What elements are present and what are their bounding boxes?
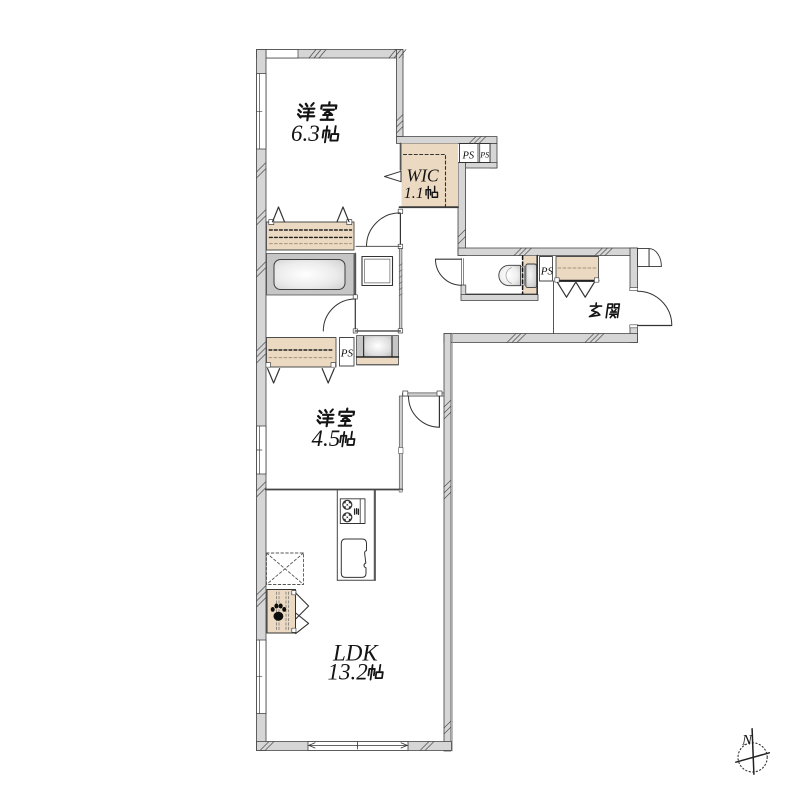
svg-text:1.1: 1.1: [404, 185, 424, 202]
svg-text:PS: PS: [540, 266, 554, 278]
svg-text:13.2: 13.2: [328, 660, 368, 685]
svg-text:PS: PS: [479, 151, 489, 160]
svg-text:N: N: [741, 733, 753, 749]
svg-text:6.3: 6.3: [291, 121, 320, 146]
svg-text:4.5: 4.5: [312, 426, 341, 451]
svg-text:PS: PS: [340, 348, 354, 360]
svg-text:WIC: WIC: [407, 166, 439, 186]
svg-text:PS: PS: [462, 151, 475, 162]
